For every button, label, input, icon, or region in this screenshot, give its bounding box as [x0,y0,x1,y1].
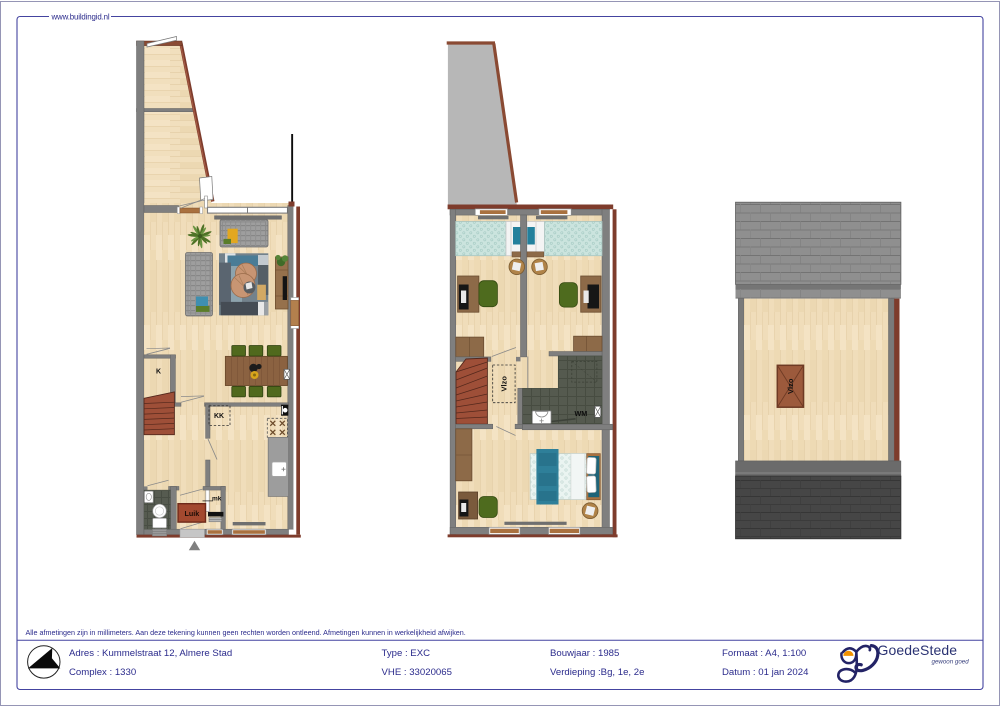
svg-text:Vlzo: Vlzo [786,378,795,394]
svg-text:KK: KK [214,413,224,420]
svg-text:WM: WM [575,409,588,418]
svg-text:Adres : Kummelstraat 12, Alme: Adres : Kummelstraat 12, Almere Stad [69,648,232,659]
svg-text:Verdieping :Bg, 1e, 2e: Verdieping :Bg, 1e, 2e [550,667,644,678]
svg-text:Luik: Luik [185,509,200,518]
svg-text:Complex : 1330: Complex : 1330 [69,667,136,678]
svg-text:Datum : 01 jan 2024: Datum : 01 jan 2024 [722,667,809,678]
svg-text:Bouwjaar : 1985: Bouwjaar : 1985 [550,648,619,659]
svg-text:Type : EXC: Type : EXC [382,648,431,659]
svg-text:Formaat : A4, 1:100: Formaat : A4, 1:100 [722,648,806,659]
svg-text:Vlzo: Vlzo [499,376,508,392]
svg-text:gewoon goed: gewoon goed [932,659,970,666]
svg-text:K: K [156,369,161,376]
svg-text:Alle afmetingen zijn in millim: Alle afmetingen zijn in millimeters. Aan… [26,628,466,637]
svg-text:VHE : 33020065: VHE : 33020065 [382,667,452,678]
svg-text:mk: mk [212,496,222,503]
svg-text:www.buildingid.nl: www.buildingid.nl [51,13,110,22]
svg-text:GoedeStede: GoedeStede [878,642,958,658]
